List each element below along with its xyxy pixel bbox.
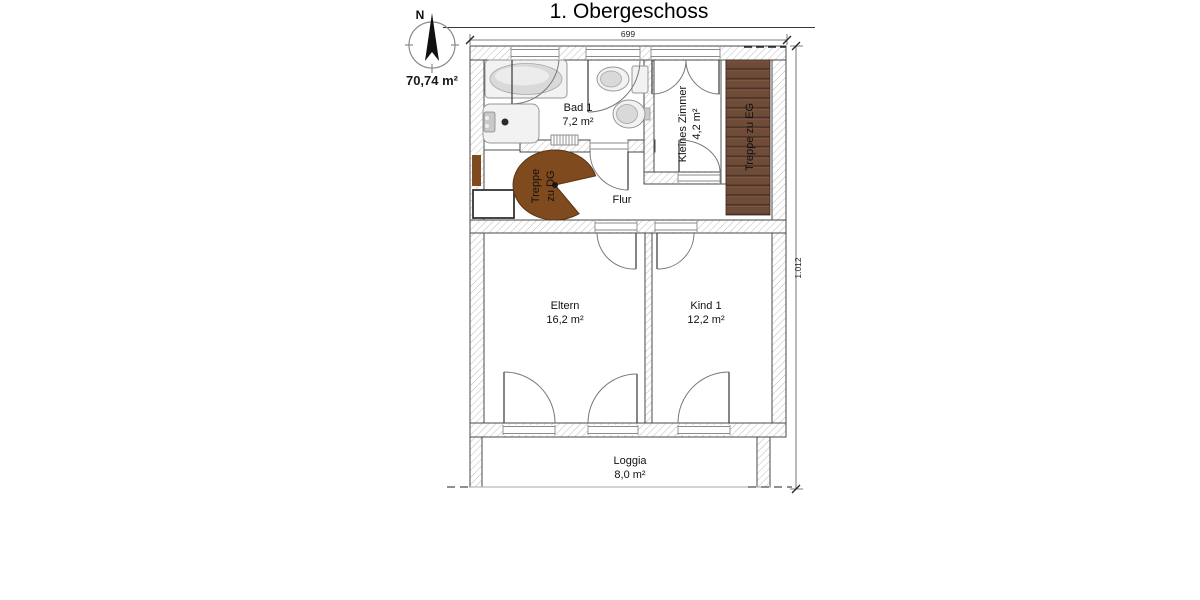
wall-right [772, 60, 786, 437]
balcony-door-eltern-1 [503, 372, 555, 435]
dimension-right-label: 1.012 [793, 257, 803, 279]
wall-eltern-kind-divider [645, 233, 652, 423]
label-flur: Flur [613, 194, 632, 206]
label-kind-area: 12,2 m² [687, 314, 725, 326]
wall-loggia-left [470, 437, 482, 487]
label-kz-area: 4,2 m² [691, 108, 703, 140]
dimension-top: 699 [466, 29, 791, 45]
shower-drain [502, 119, 509, 126]
floorplan-drawing: 699 1.012 Bad 1 7,2 m² Flur Eltern 16,2 … [0, 0, 1200, 600]
label-bad-area: 7,2 m² [562, 116, 594, 128]
dimension-right: 1.012 [790, 42, 803, 493]
closet-box [473, 190, 514, 218]
spiral-stair-entry-step [472, 155, 481, 186]
label-loggia-area: 8,0 m² [614, 469, 646, 481]
balcony-door-kind [678, 372, 730, 435]
door-bad [590, 141, 628, 190]
label-kz-name: Kleines Zimmer [677, 85, 689, 162]
balcony-door-eltern-2 [588, 374, 638, 435]
label-treppe-dg-line1: Treppe [530, 169, 542, 203]
wall-left [470, 60, 484, 437]
label-eltern-area: 16,2 m² [546, 314, 584, 326]
dimension-top-label: 699 [621, 29, 635, 39]
bathtub-icon [485, 60, 567, 98]
label-bad-name: Bad 1 [564, 102, 593, 114]
shower-icon [483, 104, 539, 143]
door-eltern [595, 221, 637, 269]
radiator-icon [551, 135, 578, 145]
label-eltern-name: Eltern [551, 300, 580, 312]
toilet-icon [597, 66, 648, 93]
floorplan-page: 1. Obergeschoss 70,74 m² N [0, 0, 1200, 600]
label-treppe-eg: Treppe zu EG [744, 103, 756, 171]
label-kind-name: Kind 1 [690, 300, 721, 312]
door-kind [655, 221, 697, 269]
label-treppe-dg-line2: zu DG [545, 170, 557, 201]
wall-kz-stair [721, 60, 726, 184]
wall-loggia-right [757, 437, 770, 487]
label-loggia-name: Loggia [613, 455, 647, 467]
